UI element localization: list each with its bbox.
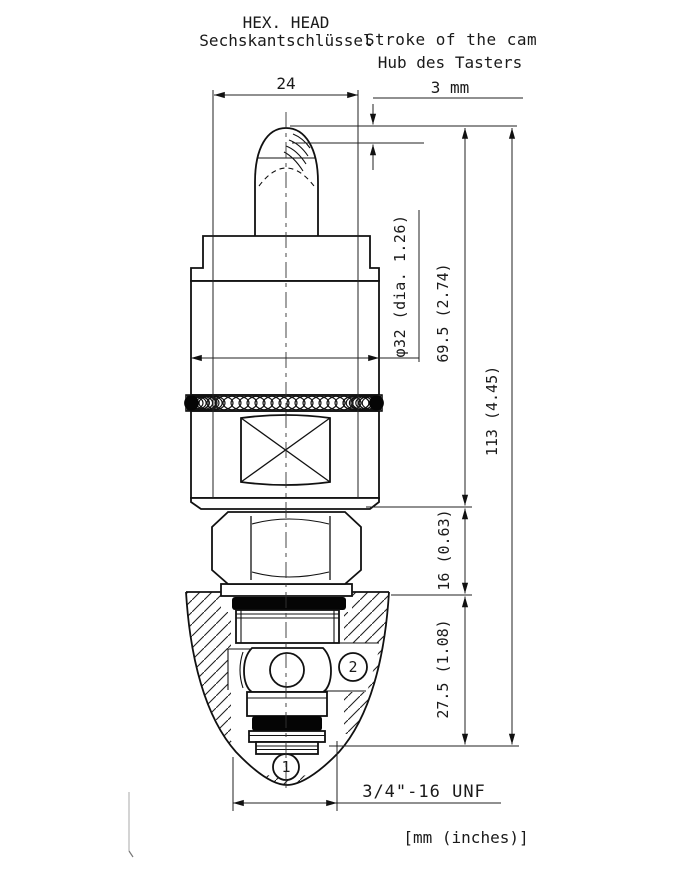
- drawing-page: 1 2: [0, 0, 700, 869]
- dim-dia32-text: φ32 (dia. 1.26): [391, 215, 409, 358]
- wave-ring-end: [184, 396, 199, 411]
- valve-technical-drawing: 1 2: [0, 0, 700, 869]
- dim-275-text: 27.5 (1.08): [434, 619, 452, 718]
- stroke-label-en: Stroke of the cam: [365, 30, 537, 49]
- hex-nut: [212, 512, 361, 584]
- dim-113-text: 113 (4.45): [483, 366, 501, 456]
- port-2-label: 2: [348, 658, 357, 676]
- thread-section: [236, 610, 339, 643]
- valve-body-upper: [191, 281, 379, 395]
- upper-oring-seal: [232, 597, 346, 610]
- stroke-label-de: Hub des Tasters: [378, 53, 523, 72]
- dim-69-text: 69.5 (2.74): [434, 263, 452, 362]
- dim-16-text: 16 (0.63): [435, 509, 453, 590]
- nose-tip: [256, 742, 318, 754]
- lower-oring-seal: [252, 716, 322, 731]
- scan-artifact-tick: [129, 851, 133, 857]
- wave-ring-end: [369, 396, 384, 411]
- dim-24-text: 24: [276, 74, 295, 93]
- hex-head-label-de: Sechskantschlüssel: [199, 31, 372, 50]
- body-flange: [191, 498, 379, 509]
- radial-port-hole: [270, 653, 304, 687]
- thread-spec-text: 3/4"-16 UNF: [362, 782, 486, 802]
- seat-washer: [221, 584, 352, 596]
- adjuster-cap: [191, 236, 379, 281]
- upper-assembly: [177, 90, 388, 584]
- backup-ring: [249, 731, 325, 742]
- stroke-value-label: 3 mm: [431, 78, 470, 97]
- wave-ring: [177, 395, 388, 411]
- cam-plunger: [255, 128, 318, 236]
- lower-neck: [247, 692, 327, 716]
- hex-head-label-en: HEX. HEAD: [243, 13, 330, 32]
- units-note-text: [mm (inches)]: [403, 828, 528, 847]
